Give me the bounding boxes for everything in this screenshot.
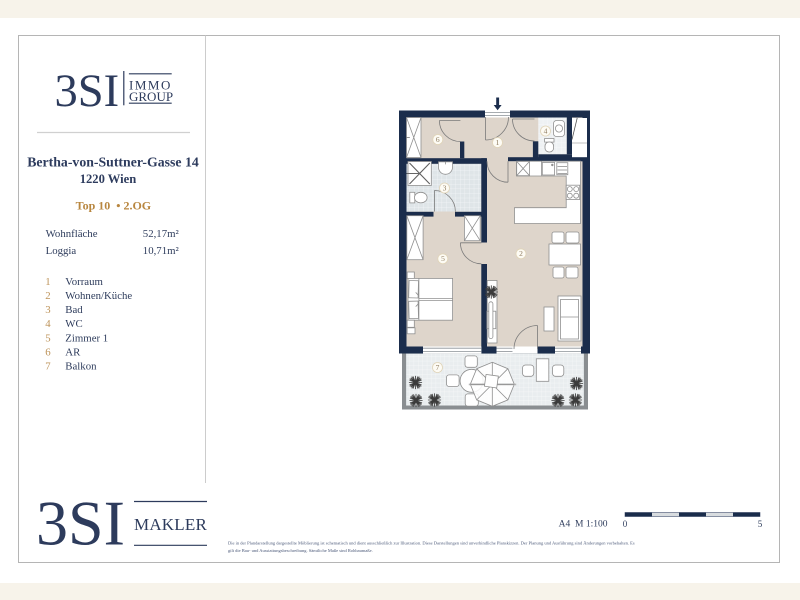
svg-text:Loggia: Loggia bbox=[46, 245, 77, 257]
svg-text:10,71m²: 10,71m² bbox=[143, 245, 179, 257]
svg-text:A4 M 1:100: A4 M 1:100 bbox=[559, 520, 608, 530]
svg-text:5: 5 bbox=[441, 254, 445, 263]
svg-text:1: 1 bbox=[496, 138, 500, 147]
svg-text:7: 7 bbox=[436, 363, 440, 372]
svg-text:MAKLER: MAKLER bbox=[134, 515, 207, 534]
svg-text:Die in der Plandarstellung dar: Die in der Plandarstellung dargestellte … bbox=[228, 541, 635, 546]
svg-text:GROUP: GROUP bbox=[129, 89, 173, 104]
svg-text:5: 5 bbox=[758, 519, 763, 529]
svg-text:gilt die Bau- und Ausstattungs: gilt die Bau- und Ausstattungsbeschreibu… bbox=[228, 548, 373, 553]
svg-text:AR: AR bbox=[65, 346, 81, 358]
svg-text:52,17m²: 52,17m² bbox=[143, 228, 179, 240]
svg-text:2: 2 bbox=[519, 249, 523, 258]
svg-text:6: 6 bbox=[45, 346, 51, 358]
svg-text:Vorraum: Vorraum bbox=[65, 276, 103, 288]
svg-text:3SI: 3SI bbox=[36, 488, 125, 559]
svg-text:1: 1 bbox=[45, 276, 50, 288]
svg-text:5: 5 bbox=[45, 332, 50, 344]
svg-text:7: 7 bbox=[45, 360, 51, 372]
svg-text:2: 2 bbox=[45, 290, 50, 302]
svg-text:3: 3 bbox=[443, 183, 447, 192]
svg-text:Bertha-von-Suttner-Gasse 14: Bertha-von-Suttner-Gasse 14 bbox=[27, 154, 199, 169]
svg-text:3: 3 bbox=[45, 304, 50, 316]
svg-text:Top 10 • 2.OG: Top 10 • 2.OG bbox=[76, 199, 151, 213]
svg-text:1220 Wien: 1220 Wien bbox=[80, 172, 137, 186]
svg-text:Zimmer 1: Zimmer 1 bbox=[65, 332, 108, 344]
svg-text:3SI: 3SI bbox=[55, 66, 120, 117]
svg-text:6: 6 bbox=[436, 135, 440, 144]
svg-text:Balkon: Balkon bbox=[65, 360, 97, 372]
svg-text:4: 4 bbox=[544, 126, 548, 135]
svg-text:4: 4 bbox=[45, 318, 51, 330]
svg-text:Bad: Bad bbox=[65, 304, 83, 316]
svg-text:0: 0 bbox=[623, 519, 628, 529]
svg-text:Wohnfläche: Wohnfläche bbox=[46, 228, 98, 240]
svg-text:Wohnen/Küche: Wohnen/Küche bbox=[65, 290, 132, 302]
svg-text:WC: WC bbox=[65, 318, 82, 330]
